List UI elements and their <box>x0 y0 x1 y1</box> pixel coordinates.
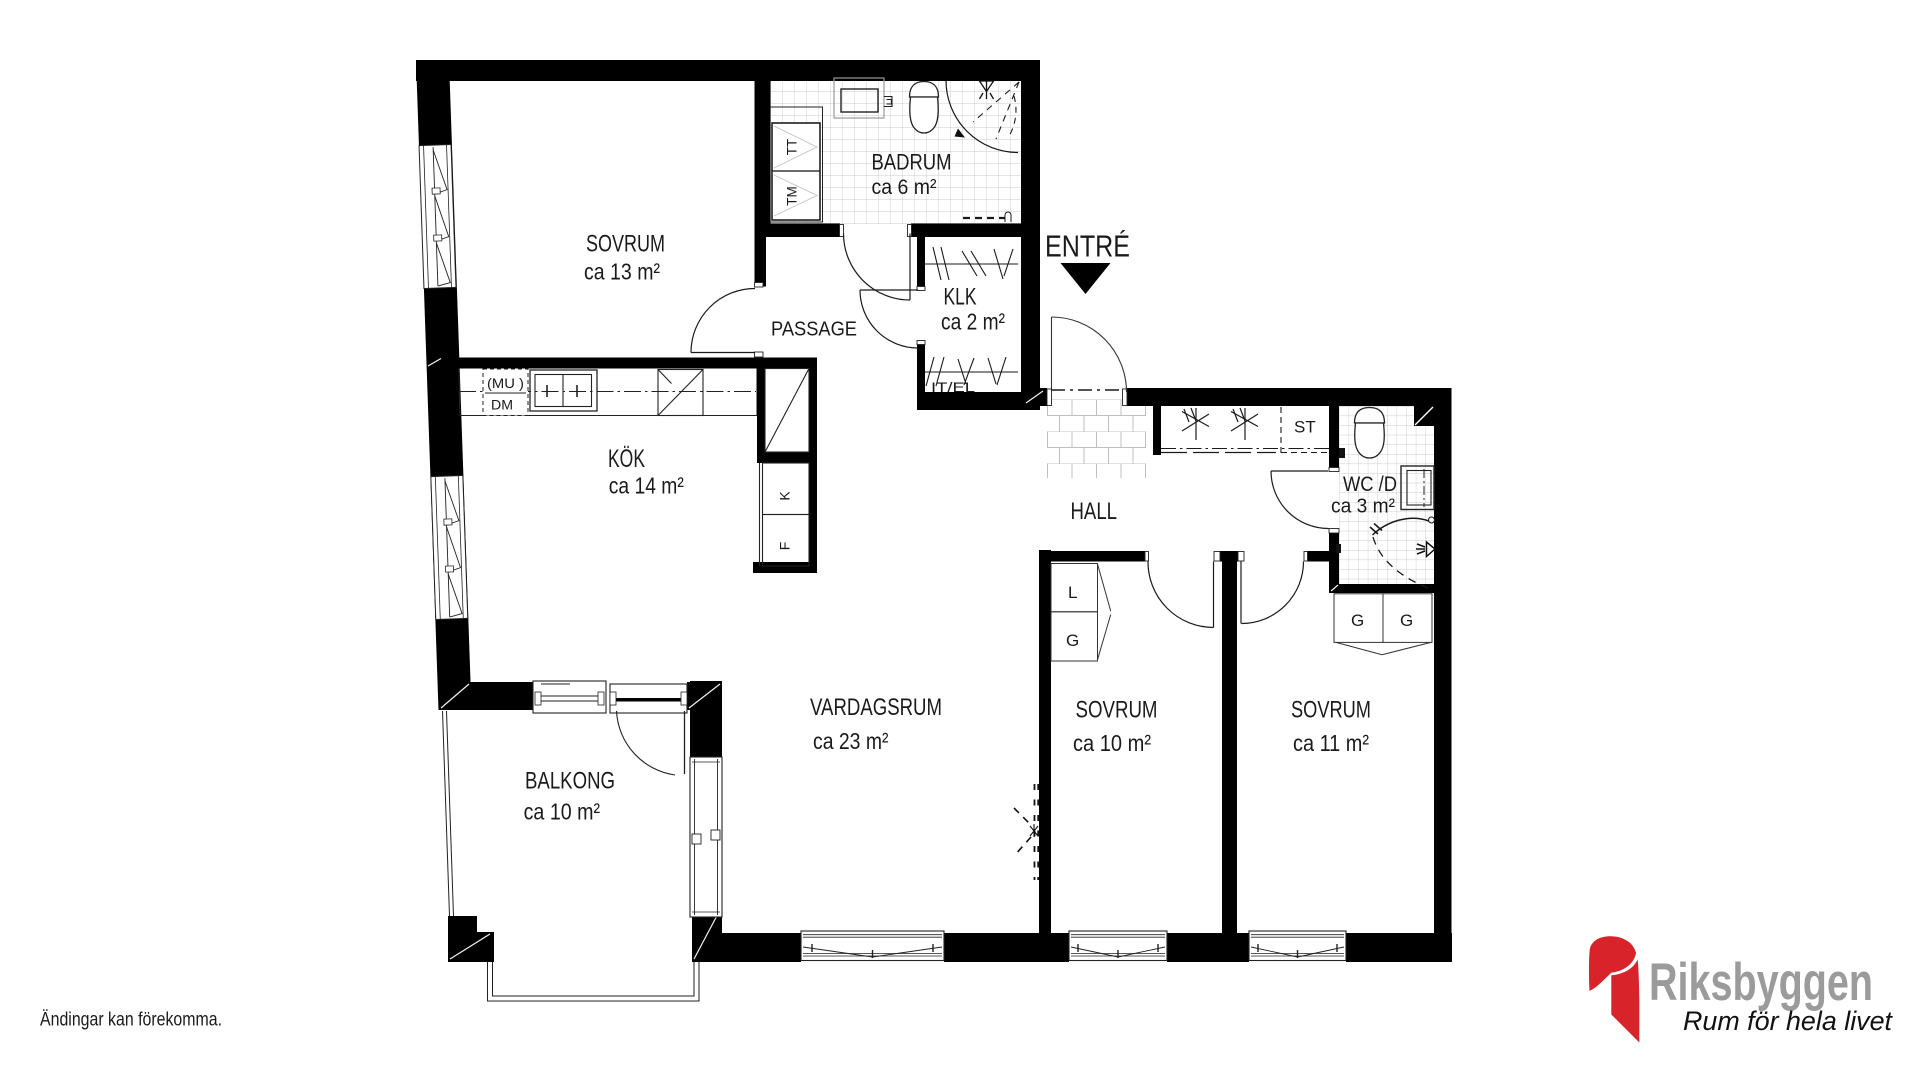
svg-text:ST: ST <box>1294 418 1316 437</box>
svg-text:ca 3 m²: ca 3 m² <box>1331 496 1395 518</box>
svg-text:BADRUM: BADRUM <box>872 150 952 175</box>
svg-text:Ändingar kan förekomma.: Ändingar kan förekomma. <box>40 1009 222 1031</box>
svg-text:DM: DM <box>491 398 513 413</box>
svg-text:ca 6 m²: ca 6 m² <box>872 176 937 199</box>
svg-text:Riksbyggen: Riksbyggen <box>1649 953 1873 1012</box>
svg-text:ca 10 m²: ca 10 m² <box>524 799 601 825</box>
svg-text:G: G <box>1066 631 1079 650</box>
svg-text:G: G <box>1351 611 1364 630</box>
svg-text:BALKONG: BALKONG <box>525 768 615 795</box>
svg-text:ca 10 m²: ca 10 m² <box>1073 730 1151 756</box>
svg-text:ca 23 m²: ca 23 m² <box>813 728 889 754</box>
svg-text:TT: TT <box>785 139 800 156</box>
svg-text:SOVRUM: SOVRUM <box>1291 697 1371 724</box>
svg-text:ca 14 m²: ca 14 m² <box>609 473 684 499</box>
svg-text:WC /D: WC /D <box>1343 473 1397 496</box>
svg-text:ca 13 m²: ca 13 m² <box>584 259 660 285</box>
svg-text:K: K <box>777 491 793 501</box>
svg-text:ca 11 m²: ca 11 m² <box>1293 730 1369 756</box>
svg-text:ca 2 m²: ca 2 m² <box>941 309 1005 335</box>
svg-text:PASSAGE: PASSAGE <box>771 318 857 341</box>
svg-text:F: F <box>777 542 793 551</box>
svg-text:KLK: KLK <box>944 284 977 311</box>
svg-text:KÖK: KÖK <box>608 445 645 473</box>
svg-text:L: L <box>1068 583 1077 602</box>
svg-text:SOVRUM: SOVRUM <box>1076 697 1158 724</box>
svg-text:ENTRÉ: ENTRÉ <box>1045 229 1130 264</box>
svg-text:HALL: HALL <box>1071 498 1118 525</box>
svg-text:SOVRUM: SOVRUM <box>586 231 665 258</box>
svg-text:TM: TM <box>785 186 800 206</box>
svg-text:VARDAGSRUM: VARDAGSRUM <box>810 694 942 721</box>
svg-text:G: G <box>1400 611 1413 630</box>
svg-text:Rum för hela livet: Rum för hela livet <box>1683 1006 1893 1036</box>
svg-text:(MU ): (MU ) <box>487 376 524 391</box>
svg-text:IT/EL: IT/EL <box>931 380 976 395</box>
